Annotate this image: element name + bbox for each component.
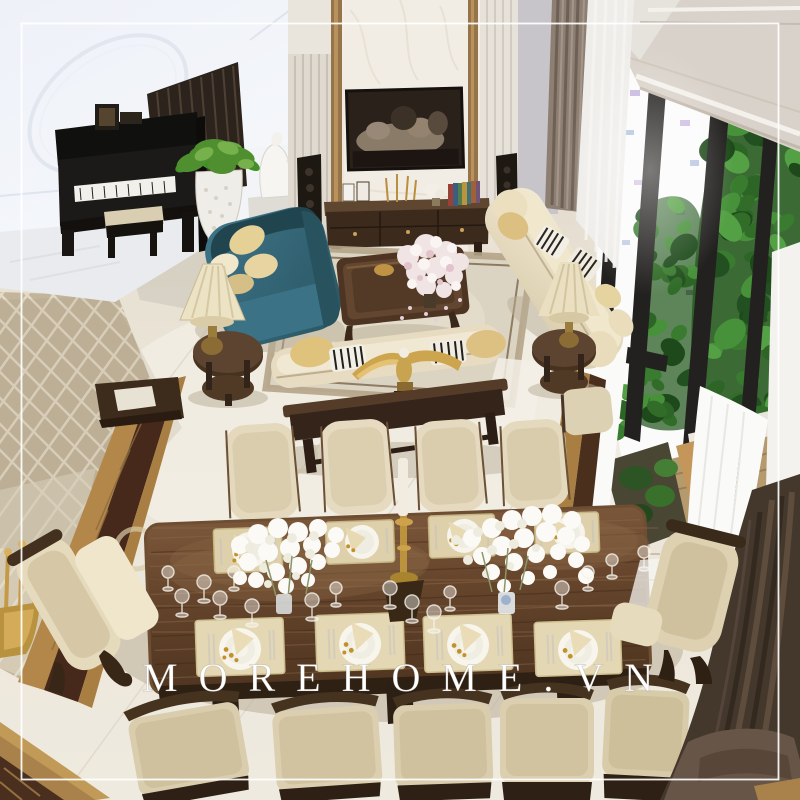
svg-text:MOREHOME.VN: MOREHOME.VN [142,655,674,700]
